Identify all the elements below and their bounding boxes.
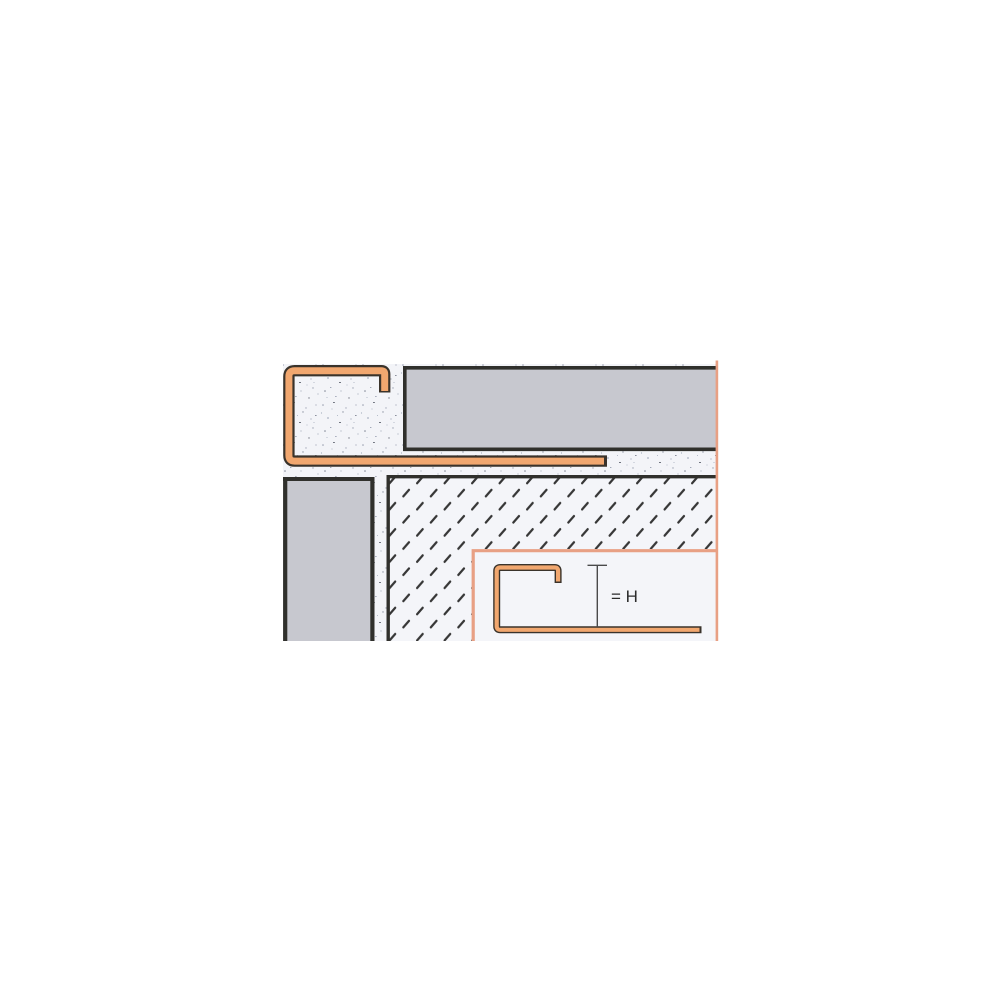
svg-text:= H: = H <box>611 587 638 606</box>
